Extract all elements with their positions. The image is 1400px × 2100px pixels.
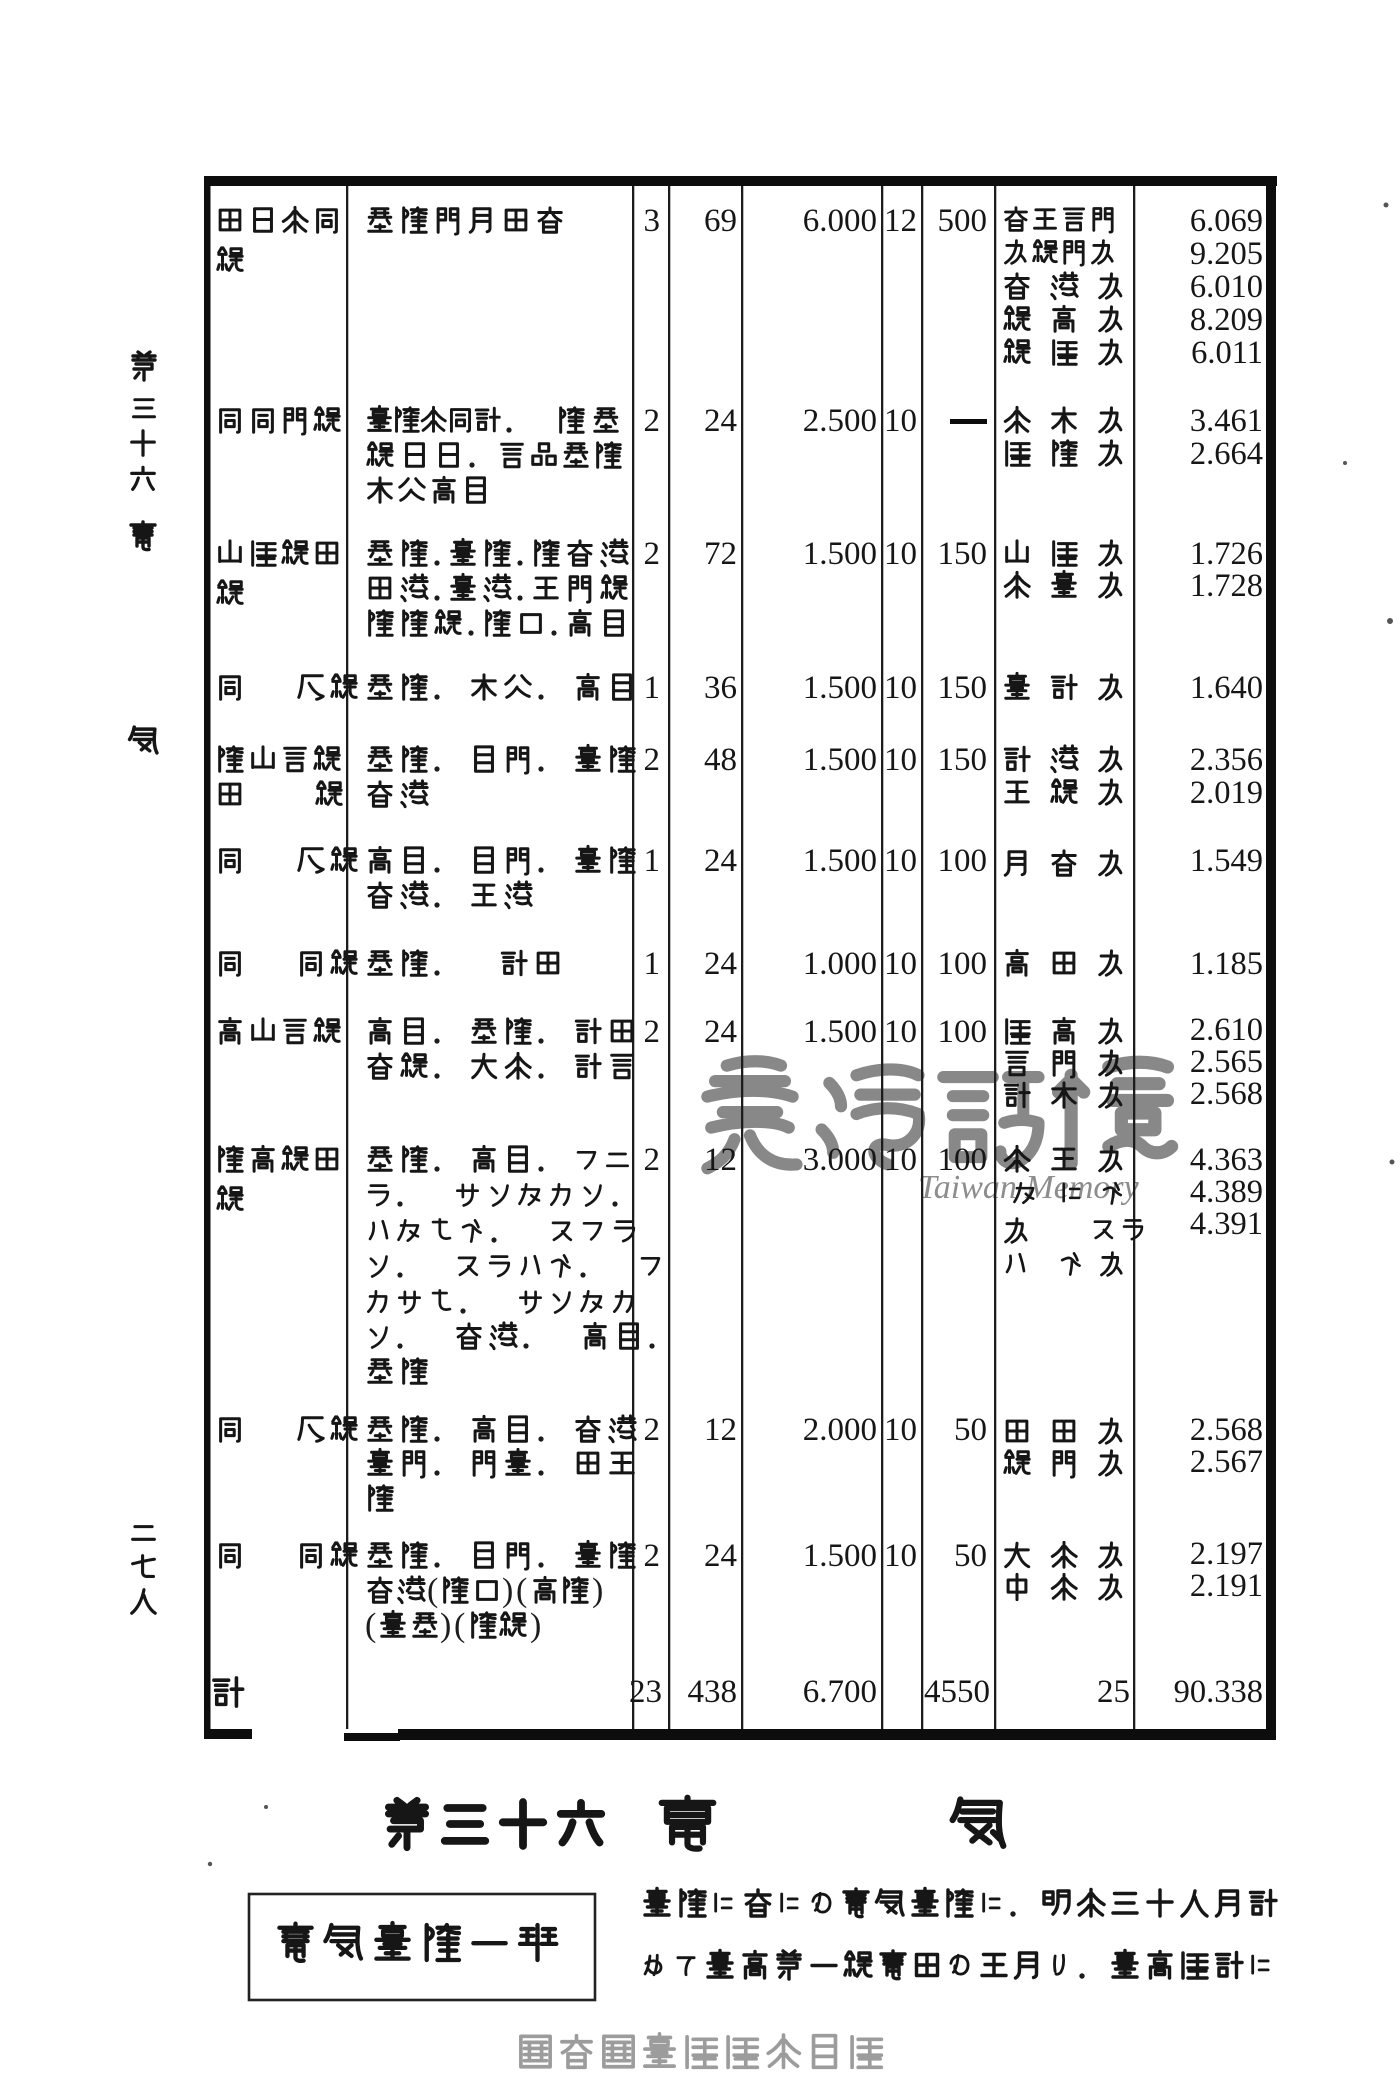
svg-text:50: 50 [954,1538,987,1574]
svg-text:10: 10 [884,670,917,706]
svg-text:2: 2 [644,403,661,439]
svg-text:72: 72 [704,536,737,572]
svg-text:23: 23 [629,1674,662,1710]
svg-text:3.000: 3.000 [803,1142,877,1178]
svg-text:6.011: 6.011 [1191,335,1263,371]
svg-text:4550: 4550 [924,1674,990,1710]
svg-text:1.500: 1.500 [803,742,877,778]
svg-text:2.568: 2.568 [1190,1412,1263,1448]
svg-text:1: 1 [644,843,661,879]
svg-text:2: 2 [644,536,661,572]
svg-text:1.640: 1.640 [1190,670,1263,706]
svg-text:3: 3 [644,203,661,239]
svg-text:10: 10 [884,742,917,778]
svg-text:10: 10 [884,1014,917,1050]
svg-text:1.726: 1.726 [1190,536,1263,572]
svg-text:9.205: 9.205 [1190,236,1263,272]
svg-text:2: 2 [644,1412,661,1448]
svg-text:24: 24 [704,843,737,879]
svg-text:2.568: 2.568 [1190,1076,1263,1112]
svg-text:24: 24 [704,1014,737,1050]
svg-text:2.019: 2.019 [1190,775,1263,811]
svg-text:1.500: 1.500 [803,536,877,572]
svg-text:24: 24 [704,403,737,439]
svg-text:69: 69 [704,203,737,239]
svg-text:1.500: 1.500 [803,843,877,879]
svg-text:100: 100 [938,1142,988,1178]
svg-text:(: ( [516,1572,527,1609]
svg-text:24: 24 [704,946,737,982]
svg-text:12: 12 [704,1142,737,1178]
svg-text:1: 1 [644,670,661,706]
svg-text:2.197: 2.197 [1190,1536,1263,1572]
svg-text:2: 2 [644,1538,661,1574]
svg-text:8.209: 8.209 [1190,302,1263,338]
svg-text:50: 50 [954,1412,987,1448]
svg-text:4.389: 4.389 [1190,1174,1263,1210]
svg-text:2.664: 2.664 [1190,436,1263,472]
svg-text:2: 2 [644,1014,661,1050]
svg-text:12: 12 [704,1412,737,1448]
svg-text:100: 100 [938,1014,988,1050]
svg-text:1.549: 1.549 [1190,843,1263,879]
svg-text:12: 12 [884,203,917,239]
svg-text:3.461: 3.461 [1190,403,1263,439]
svg-text:6.069: 6.069 [1190,203,1263,239]
svg-text:10: 10 [884,403,917,439]
svg-text:2.191: 2.191 [1190,1568,1263,1604]
svg-text:2.500: 2.500 [803,403,877,439]
svg-text:(: ( [454,1607,465,1644]
svg-text:1.185: 1.185 [1190,946,1263,982]
svg-text:25: 25 [1097,1674,1130,1710]
svg-text:): ) [592,1572,603,1609]
svg-text:10: 10 [884,1142,917,1178]
svg-text:24: 24 [704,1538,737,1574]
svg-text:(: ( [365,1607,376,1644]
svg-text:4.363: 4.363 [1190,1142,1263,1178]
svg-text:1.500: 1.500 [803,1014,877,1050]
svg-text:10: 10 [884,946,917,982]
svg-text:10: 10 [884,1538,917,1574]
svg-text:438: 438 [688,1674,738,1710]
svg-text:6.010: 6.010 [1190,269,1263,305]
svg-text:100: 100 [938,843,988,879]
svg-text:2.610: 2.610 [1190,1012,1263,1048]
svg-text:1: 1 [644,946,661,982]
svg-text:500: 500 [938,203,988,239]
svg-text:1.500: 1.500 [803,670,877,706]
svg-text:100: 100 [938,946,988,982]
svg-text:10: 10 [884,843,917,879]
svg-text:90.338: 90.338 [1174,1674,1263,1710]
svg-text:150: 150 [938,536,988,572]
svg-text:2: 2 [644,742,661,778]
svg-text:10: 10 [884,1412,917,1448]
svg-text:2: 2 [644,1142,661,1178]
svg-text:2.565: 2.565 [1190,1044,1263,1080]
svg-text:48: 48 [704,742,737,778]
svg-text:10: 10 [884,536,917,572]
svg-text:6.000: 6.000 [803,203,877,239]
svg-text:): ) [502,1572,513,1609]
svg-text:): ) [440,1607,451,1644]
svg-text:(: ( [427,1572,438,1609]
svg-text:2.567: 2.567 [1190,1444,1263,1480]
svg-text:2.000: 2.000 [803,1412,877,1448]
svg-text:36: 36 [704,670,737,706]
svg-text:1.500: 1.500 [803,1538,877,1574]
svg-text:1.728: 1.728 [1190,568,1263,604]
svg-text:150: 150 [938,670,988,706]
svg-text:4.391: 4.391 [1190,1206,1263,1242]
svg-text:6.700: 6.700 [803,1674,877,1710]
svg-text:): ) [530,1607,541,1644]
svg-text:150: 150 [938,742,988,778]
svg-text:1.000: 1.000 [803,946,877,982]
svg-text:2.356: 2.356 [1190,742,1263,778]
